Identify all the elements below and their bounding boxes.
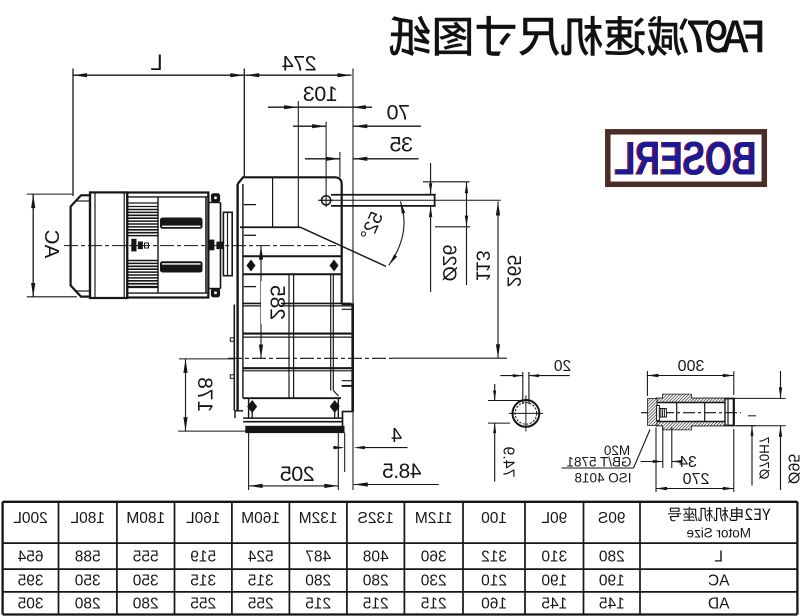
svg-text:654: 654 [17,549,43,566]
svg-text:215: 215 [363,596,389,613]
svg-text:ISO 4018: ISO 4018 [574,471,631,486]
svg-text:Ø26: Ø26 [438,245,460,282]
svg-text:113: 113 [472,250,494,281]
svg-text:270: 270 [683,471,710,488]
svg-text:Ø70H7: Ø70H7 [757,437,772,480]
svg-text:487: 487 [305,549,331,566]
svg-text:74.9: 74.9 [500,446,517,477]
svg-text:GB/T 5781: GB/T 5781 [566,455,631,470]
svg-text:AD: AD [708,596,730,613]
svg-text:AC: AC [708,573,730,590]
svg-text:180M: 180M [126,510,165,527]
svg-text:408: 408 [363,549,389,566]
svg-text:312: 312 [481,549,507,566]
svg-text:160: 160 [481,596,507,613]
svg-text:305: 305 [18,596,44,613]
svg-text:315: 315 [248,573,274,590]
svg-text:34: 34 [679,454,697,471]
svg-text:103: 103 [303,82,338,106]
svg-text:395: 395 [18,573,44,590]
svg-text:AC: AC [40,230,63,259]
svg-text:160M: 160M [241,510,280,527]
svg-text:280: 280 [305,573,331,590]
svg-text:215: 215 [421,596,447,613]
svg-text:315: 315 [190,573,216,590]
svg-text:160L: 160L [186,510,221,527]
svg-text:70: 70 [387,101,410,125]
svg-text:200L: 200L [13,510,48,527]
svg-text:230: 230 [420,573,446,590]
svg-text:20: 20 [554,358,572,375]
svg-text:90L: 90L [541,510,567,527]
svg-text:588: 588 [75,549,101,566]
svg-text:145: 145 [541,596,567,613]
svg-text:255: 255 [190,596,216,613]
svg-text:132S: 132S [358,510,394,527]
svg-text:100: 100 [481,510,507,527]
svg-text:280: 280 [598,549,624,566]
svg-text:215: 215 [305,596,331,613]
svg-text:BOSERL: BOSERL [615,131,757,184]
svg-text:285: 285 [266,285,289,320]
svg-text:Ø95: Ø95 [785,454,800,484]
svg-text:48.5: 48.5 [383,460,422,483]
svg-text:L: L [714,549,723,566]
svg-text:519: 519 [190,549,216,566]
svg-text:180L: 180L [70,510,105,527]
svg-text:190: 190 [541,573,567,590]
svg-text:35: 35 [390,133,413,157]
svg-text:4: 4 [391,425,402,447]
svg-text:265: 265 [503,255,525,288]
svg-text:Motor Size: Motor Size [686,526,751,541]
svg-text:300: 300 [678,358,705,375]
svg-text:310: 310 [541,549,567,566]
svg-text:255: 255 [248,596,274,613]
svg-text:90S: 90S [598,510,626,527]
svg-text:280: 280 [132,596,158,613]
svg-text:280: 280 [362,573,388,590]
svg-text:350: 350 [74,573,100,590]
svg-text:112M: 112M [415,510,453,527]
svg-text:210: 210 [481,573,507,590]
svg-text:178: 178 [193,377,216,412]
svg-text:555: 555 [133,549,159,566]
svg-text:145: 145 [599,596,625,613]
svg-text:360: 360 [420,549,446,566]
svg-text:524: 524 [247,549,273,566]
svg-text:280: 280 [74,596,100,613]
svg-text:350: 350 [132,573,158,590]
svg-text:205: 205 [280,462,315,486]
svg-text:274: 274 [282,52,317,76]
svg-text:L: L [150,50,162,75]
svg-text:132M: 132M [299,510,338,527]
svg-text:190: 190 [598,573,624,590]
